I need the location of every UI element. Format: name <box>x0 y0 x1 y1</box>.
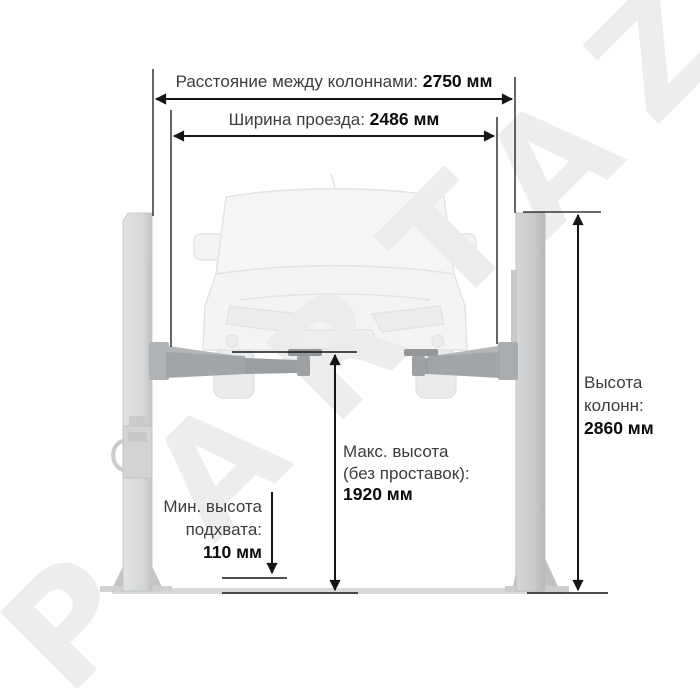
car-left-foglight <box>226 335 238 347</box>
car-antenna <box>331 174 335 188</box>
annotation-drive-width-value: 2486 мм <box>370 109 440 129</box>
right-arm-carriage <box>498 342 518 380</box>
lift-dimension-diagram: P A R T A Z <box>0 0 700 700</box>
annotation-min-pickup-line1: Мин. высота <box>163 497 262 516</box>
annotation-column-height-line1: Высота <box>584 373 642 392</box>
annotation-max-height: Макс. высота (без проставок): 1920 мм <box>343 441 470 506</box>
right-arm-segment1 <box>428 352 500 378</box>
annotation-column-height-line2: колонн: <box>584 396 644 415</box>
right-arm-pad <box>412 356 425 376</box>
right-arm-pad-plate <box>404 349 438 356</box>
motor-detail <box>128 432 147 442</box>
annotation-max-height-value: 1920 мм <box>343 484 413 504</box>
annotation-min-pickup-height: Мин. высота подхвата: 110 мм <box>110 496 262 565</box>
annotation-min-pickup-value: 110 мм <box>203 542 262 562</box>
annotation-drive-width-label: Ширина проезда: <box>229 110 365 129</box>
car-right-foglight <box>432 335 444 347</box>
annotation-column-height: Высота колонн: 2860 мм <box>584 372 654 441</box>
diagram-canvas: P A R T A Z <box>0 0 700 700</box>
left-arm-segment2 <box>245 358 298 374</box>
left-arm-pad <box>297 356 310 376</box>
annotation-max-height-line1: Макс. высота <box>343 442 448 461</box>
annotation-drive-width: Ширина проезда: 2486 мм <box>174 109 494 130</box>
annotation-column-height-value: 2860 мм <box>584 418 654 438</box>
annotation-column-distance: Расстояние между колоннами: 2750 мм <box>156 71 512 92</box>
left-arm-segment1 <box>166 352 245 378</box>
annotation-column-distance-value: 2750 мм <box>423 71 493 91</box>
annotation-min-pickup-line2: подхвата: <box>186 520 262 539</box>
right-column-body <box>516 213 545 591</box>
watermark: P A R T A Z <box>0 0 700 700</box>
annotation-column-distance-label: Расстояние между колоннами: <box>176 72 418 91</box>
annotation-max-height-line2: (без проставок): <box>343 464 470 483</box>
